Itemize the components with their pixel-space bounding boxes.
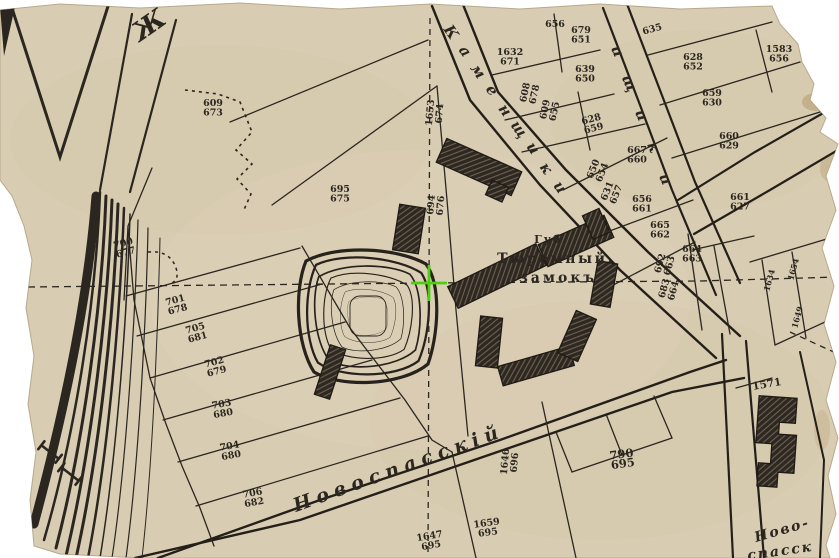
plot-number-label: 706682 (242, 486, 265, 510)
plot-number-label: 639650 (575, 64, 595, 85)
prison-label-line3: замокъ (519, 270, 597, 286)
plot-number-label: 679651 (571, 25, 591, 46)
plot-number-label: 659630 (702, 88, 722, 109)
map-viewport[interactable]: Губ. Тюремный. замокъ Новоспасскій Ново-… (0, 0, 839, 558)
plot-number-label: 660629 (719, 131, 739, 152)
plot-number-label: 661627 (730, 192, 750, 213)
plot-number-label: 609673 (203, 98, 223, 119)
plot-number-label: 1632671 (497, 47, 523, 68)
plot-number-label: 695675 (330, 184, 350, 205)
plot-number-label: 1583656 (766, 44, 792, 65)
plot-number-label: 704680 (219, 439, 242, 463)
plot-number-label: 628652 (683, 52, 703, 73)
prison-label-line1: Губ. (534, 233, 568, 246)
prison-label-line2: Тюремный. (497, 250, 615, 267)
plot-number-label: 694676 (425, 194, 447, 216)
plot-number-label: 656 (545, 19, 565, 30)
plot-number-label: 790695 (609, 445, 636, 472)
plot-number-label: 703680 (211, 397, 234, 421)
plot-number-label: 665662 (650, 220, 670, 241)
plot-number-label: 667660 (627, 145, 647, 166)
plot-number-label: 664663 (682, 244, 702, 265)
map-canvas: Губ. Тюремный. замокъ Новоспасскій Ново-… (0, 0, 839, 558)
prison-building (475, 316, 502, 368)
plot-number-label: 656661 (632, 194, 652, 215)
